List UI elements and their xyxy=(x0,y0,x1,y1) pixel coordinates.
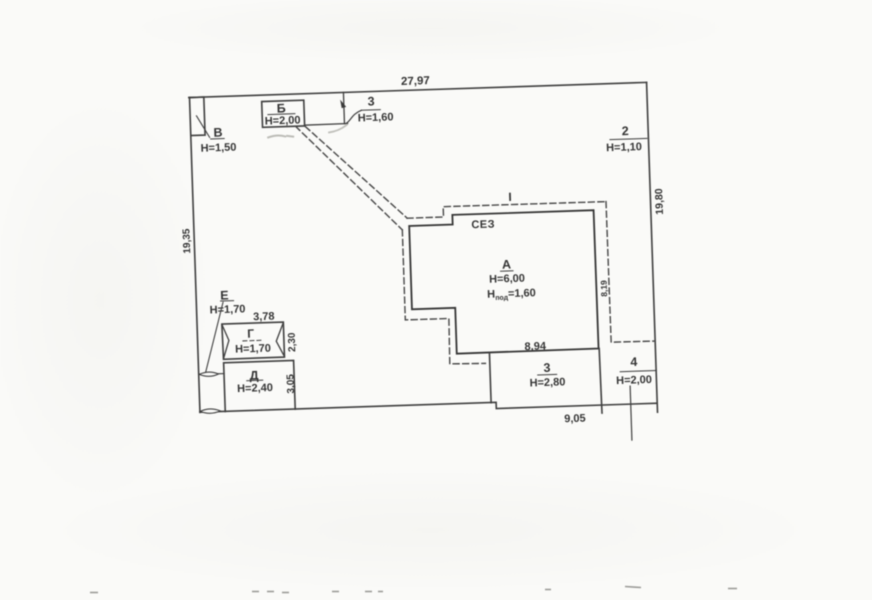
svg-text:3: 3 xyxy=(543,361,550,375)
svg-text:H=2,00: H=2,00 xyxy=(616,374,652,387)
svg-text:4: 4 xyxy=(630,355,637,369)
svg-text:H=1,70: H=1,70 xyxy=(210,303,246,316)
svg-text:19,35: 19,35 xyxy=(181,228,193,254)
svg-text:2,30: 2,30 xyxy=(287,332,299,352)
svg-text:СЕЗ: СЕЗ xyxy=(471,219,495,232)
svg-text:В: В xyxy=(213,125,222,139)
svg-text:H=1,70: H=1,70 xyxy=(235,343,271,356)
svg-text:H=1,50: H=1,50 xyxy=(200,142,236,155)
svg-text:Г: Г xyxy=(247,327,254,341)
svg-text:H=1,60: H=1,60 xyxy=(358,111,394,124)
svg-text:2: 2 xyxy=(621,124,628,138)
svg-text:3,78: 3,78 xyxy=(253,311,275,324)
svg-text:9,05: 9,05 xyxy=(564,413,586,426)
svg-text:А: А xyxy=(502,257,511,271)
svg-text:8,94: 8,94 xyxy=(524,340,547,353)
svg-text:27,97: 27,97 xyxy=(401,75,430,88)
svg-text:I: I xyxy=(508,190,512,204)
svg-text:3,05: 3,05 xyxy=(285,374,297,394)
svg-text:8,19: 8,19 xyxy=(599,280,610,297)
svg-text:H=6,00: H=6,00 xyxy=(489,273,525,286)
svg-text:19,80: 19,80 xyxy=(653,188,666,215)
svg-text:H=2,80: H=2,80 xyxy=(529,376,565,389)
svg-text:H=2,40: H=2,40 xyxy=(237,382,273,395)
svg-text:3: 3 xyxy=(367,94,374,108)
svg-text:H=1,10: H=1,10 xyxy=(606,141,642,154)
